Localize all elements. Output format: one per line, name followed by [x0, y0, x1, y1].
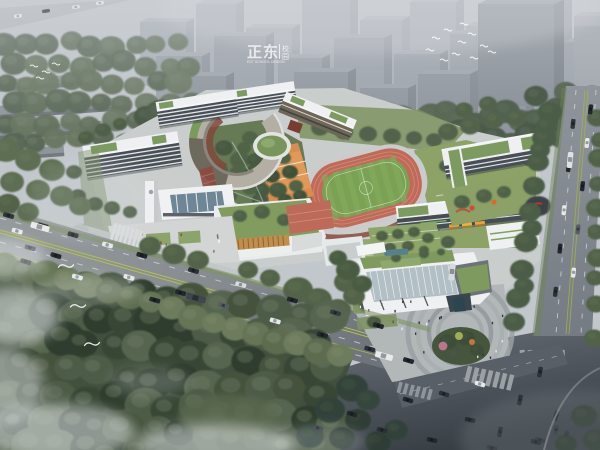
svg-text:校: 校: [282, 44, 289, 53]
svg-text:正东: 正东: [247, 43, 279, 61]
svg-text:EST SCHOOL DESIGN: EST SCHOOL DESIGN: [247, 60, 285, 64]
